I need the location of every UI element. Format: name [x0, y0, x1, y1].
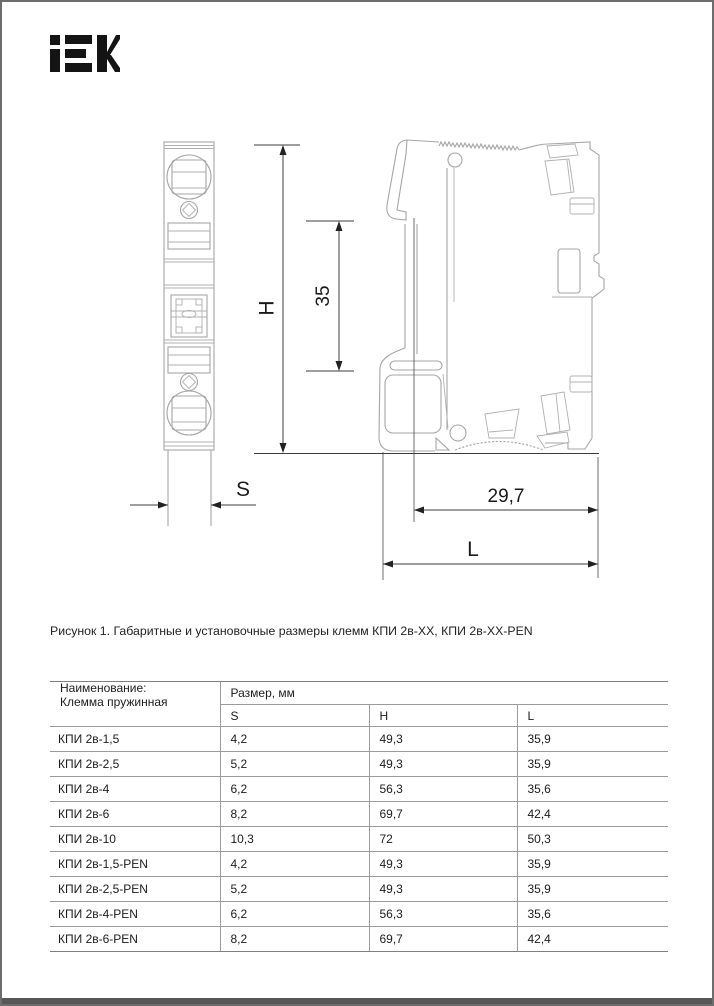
table-row: КПИ 2в-1,5-PEN 4,2 49,3 35,9: [50, 852, 668, 877]
cell-l: 35,9: [517, 877, 668, 902]
cell-s: 8,2: [220, 802, 369, 827]
spec-table: Наименование: Клемма пружинная Размер, м…: [50, 681, 668, 952]
cell-name: КПИ 2в-6: [50, 802, 220, 827]
dimension-35: 35: [306, 221, 354, 371]
dimension-h: H: [254, 145, 599, 454]
cell-s: 6,2: [220, 902, 369, 927]
col-header-s: S: [220, 705, 369, 727]
dim-h-label: H: [256, 300, 279, 315]
front-view: [164, 142, 214, 526]
cell-s: 4,2: [220, 852, 369, 877]
cell-name: КПИ 2в-6-PEN: [50, 927, 220, 952]
cell-h: 56,3: [369, 902, 517, 927]
table-header-size: Размер, мм: [220, 682, 668, 705]
figure-drawing: H 35 S 29,7: [2, 2, 714, 622]
cell-h: 56,3: [369, 777, 517, 802]
cell-h: 69,7: [369, 927, 517, 952]
dim-s-label: S: [236, 478, 250, 501]
cell-l: 42,4: [517, 802, 668, 827]
table-row: КПИ 2в-6 8,2 69,7 42,4: [50, 802, 668, 827]
cell-l: 35,9: [517, 852, 668, 877]
dimension-297: 29,7: [414, 218, 598, 578]
cell-name: КПИ 2в-1,5-PEN: [50, 852, 220, 877]
cell-l: 35,9: [517, 727, 668, 752]
cell-l: 35,6: [517, 777, 668, 802]
dimension-s: S: [130, 478, 256, 509]
cell-h: 72: [369, 827, 517, 852]
name-header-line1: Наименование:: [60, 682, 220, 696]
cell-l: 50,3: [517, 827, 668, 852]
dim-l-label: L: [467, 538, 479, 561]
cell-s: 6,2: [220, 777, 369, 802]
cell-s: 5,2: [220, 752, 369, 777]
cell-l: 35,6: [517, 902, 668, 927]
cell-l: 35,9: [517, 752, 668, 777]
figure-caption: Рисунок 1. Габаритные и установочные раз…: [50, 624, 680, 639]
table-row: КПИ 2в-1,5 4,2 49,3 35,9: [50, 727, 668, 752]
side-view: [379, 140, 604, 451]
cell-name: КПИ 2в-2,5-PEN: [50, 877, 220, 902]
table-row: КПИ 2в-6-PEN 8,2 69,7 42,4: [50, 927, 668, 952]
table-row: КПИ 2в-2,5-PEN 5,2 49,3 35,9: [50, 877, 668, 902]
dimension-l: L: [383, 452, 598, 580]
datasheet-page: H 35 S 29,7: [0, 0, 714, 1006]
cell-s: 10,3: [220, 827, 369, 852]
table-row: КПИ 2в-4 6,2 56,3 35,6: [50, 777, 668, 802]
cell-name: КПИ 2в-10: [50, 827, 220, 852]
cell-name: КПИ 2в-4: [50, 777, 220, 802]
col-header-l: L: [517, 705, 668, 727]
cell-h: 49,3: [369, 727, 517, 752]
table-row: КПИ 2в-4-PEN 6,2 56,3 35,6: [50, 902, 668, 927]
col-header-h: H: [369, 705, 517, 727]
cell-h: 49,3: [369, 752, 517, 777]
cell-name: КПИ 2в-2,5: [50, 752, 220, 777]
cell-h: 69,7: [369, 802, 517, 827]
table-header-row-1: Наименование: Клемма пружинная Размер, м…: [50, 682, 668, 705]
table-row: КПИ 2в-10 10,3 72 50,3: [50, 827, 668, 852]
cell-s: 5,2: [220, 877, 369, 902]
table-row: КПИ 2в-2,5 5,2 49,3 35,9: [50, 752, 668, 777]
footer-accent-bar: [2, 998, 712, 1004]
dim-297-label: 29,7: [488, 486, 525, 507]
cell-h: 49,3: [369, 852, 517, 877]
cell-l: 42,4: [517, 927, 668, 952]
cell-s: 4,2: [220, 727, 369, 752]
cell-s: 8,2: [220, 927, 369, 952]
table-header-name: Наименование: Клемма пружинная: [50, 682, 220, 727]
cell-name: КПИ 2в-1,5: [50, 727, 220, 752]
cell-h: 49,3: [369, 877, 517, 902]
cell-name: КПИ 2в-4-PEN: [50, 902, 220, 927]
dim-35-label: 35: [313, 285, 334, 306]
name-header-line2: Клемма пружинная: [60, 696, 220, 710]
